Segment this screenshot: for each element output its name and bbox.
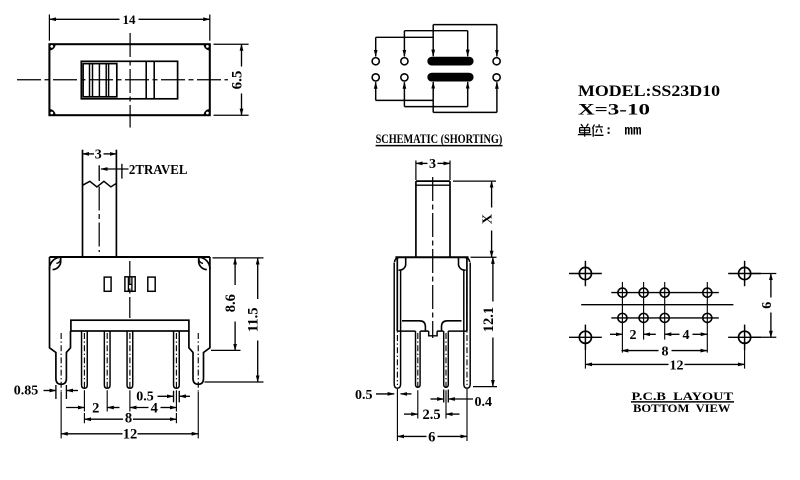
svg-text:0.4: 0.4 — [475, 395, 493, 410]
svg-text:6: 6 — [428, 429, 435, 445]
svg-text:12: 12 — [670, 358, 684, 373]
svg-text:3: 3 — [95, 147, 102, 162]
svg-text:MODEL:SS23D10: MODEL:SS23D10 — [578, 83, 720, 100]
svg-text:0.85: 0.85 — [14, 384, 39, 399]
svg-text:8: 8 — [125, 411, 132, 427]
svg-text:4: 4 — [151, 400, 158, 416]
svg-text:2: 2 — [630, 328, 637, 343]
svg-text:0.5: 0.5 — [355, 388, 373, 403]
svg-text:mm: mm — [625, 124, 642, 139]
svg-text:4: 4 — [683, 328, 690, 343]
svg-text:SCHEMATIC (SHORTING): SCHEMATIC (SHORTING) — [376, 132, 503, 146]
svg-text:2.5: 2.5 — [422, 407, 440, 423]
svg-text:3: 3 — [429, 157, 436, 172]
svg-text:11.5: 11.5 — [246, 308, 262, 333]
svg-text:14: 14 — [123, 12, 137, 27]
svg-text:8: 8 — [662, 345, 669, 360]
svg-text:12.1: 12.1 — [481, 307, 497, 332]
svg-text:2: 2 — [92, 400, 99, 416]
svg-text:BOTTOM VIEW: BOTTOM VIEW — [633, 401, 731, 415]
svg-text:6: 6 — [760, 302, 775, 309]
svg-text:8.6: 8.6 — [223, 294, 239, 312]
svg-text:12: 12 — [123, 427, 138, 443]
svg-text:2TRAVEL: 2TRAVEL — [129, 163, 188, 178]
svg-text:X: X — [481, 214, 496, 224]
svg-text:6.5: 6.5 — [230, 71, 246, 90]
svg-text:X=3-10: X=3-10 — [578, 102, 650, 119]
